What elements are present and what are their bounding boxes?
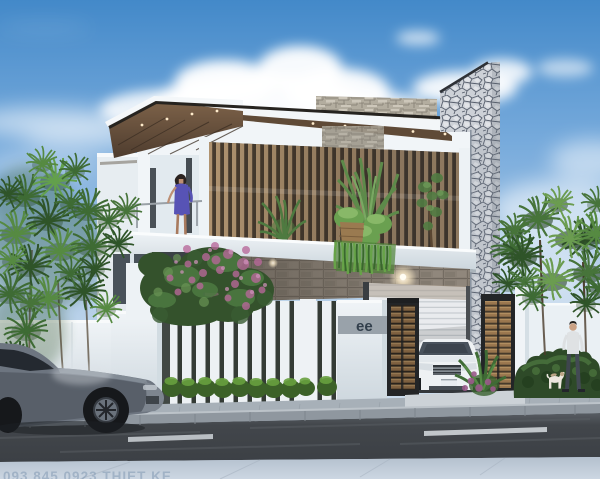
svg-text:ee: ee	[356, 318, 373, 335]
svg-text:093 845 0923 THIET KE: 093 845 0923 THIET KE	[3, 469, 172, 479]
